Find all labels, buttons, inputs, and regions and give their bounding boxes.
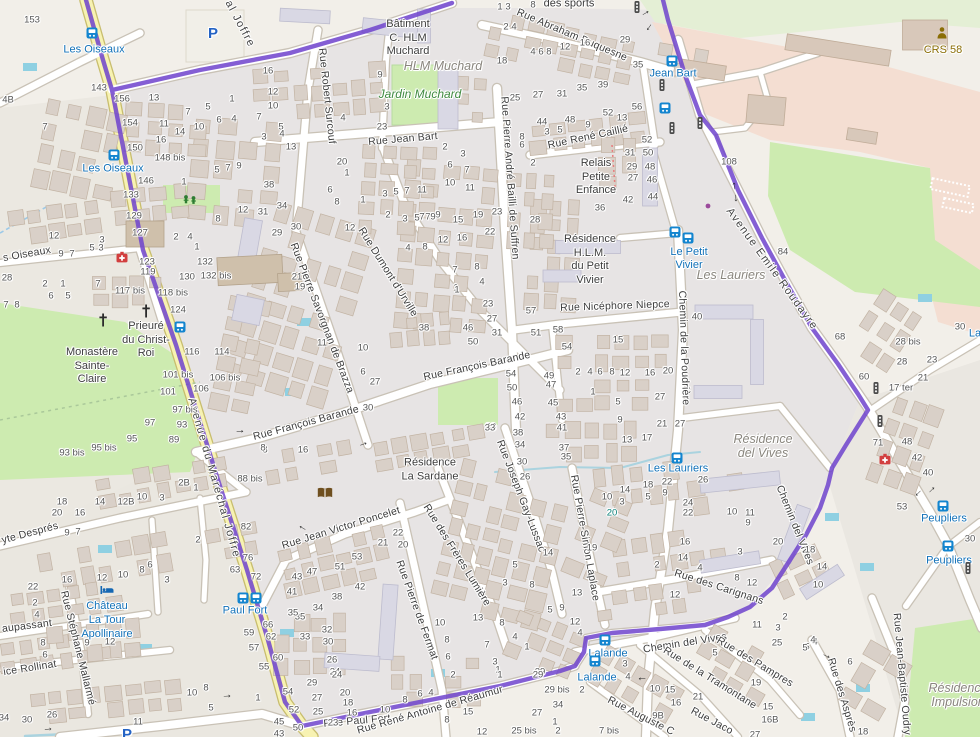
map-base-layer — [0, 0, 980, 737]
map-canvas[interactable]: al JoffreAvenue du Maréchal JoffreRue Ro… — [0, 0, 980, 737]
